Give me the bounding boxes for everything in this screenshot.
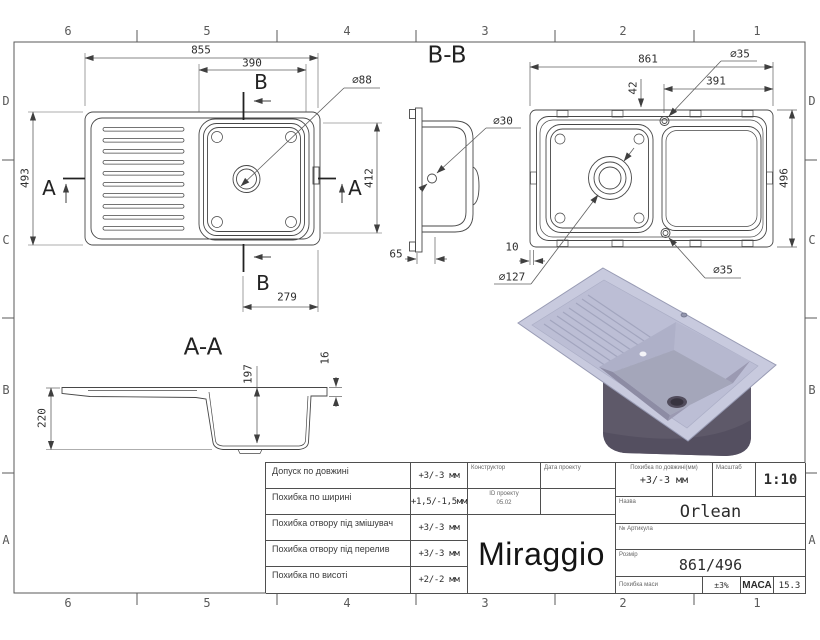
section-marker-a-left: A <box>42 178 56 198</box>
logo-cell: Miraggio <box>468 515 616 594</box>
tolerance-value-text: +1,5/-1,5мм <box>411 489 467 514</box>
dim-42: 42 <box>628 81 639 94</box>
dim-390: 390 <box>242 58 262 69</box>
section-bb-view <box>410 108 480 252</box>
length-tolerance-label: Похибка по довжині(мм) <box>616 463 712 472</box>
zone-row-right-a: A <box>808 534 815 546</box>
zone-col-bottom-1: 1 <box>753 597 760 609</box>
zone-col-top-6: 6 <box>64 25 71 37</box>
mass-tolerance-label-cell: Похибка маси <box>616 577 703 594</box>
bottom-view <box>530 110 773 247</box>
tolerance-row-value: +2/-2 мм <box>411 567 468 594</box>
length-tolerance-cell: Похибка по довжині(мм) +3/-3 мм <box>616 463 713 497</box>
callout-diam-30: ⌀30 <box>493 116 513 127</box>
project-date-cell: Дата проекту <box>541 463 616 489</box>
bottom-view-hole-top <box>660 117 669 126</box>
article-cell: № Артикула <box>616 524 806 550</box>
render-3d <box>518 268 776 456</box>
tolerance-row-label: Похибка отвору під змішувач <box>266 515 411 541</box>
zone-row-left-a: A <box>2 534 9 546</box>
tolerance-row-label: Похибка по ширині <box>266 489 411 515</box>
bottom-view-dimensions <box>494 61 797 284</box>
zone-row-right-d: D <box>808 95 815 107</box>
render-overflow-hole <box>640 352 647 357</box>
callout-diam-35-bottom: ⌀35 <box>713 265 733 276</box>
zone-col-top-5: 5 <box>203 25 210 37</box>
tolerance-row-value: +3/-3 мм <box>411 515 468 541</box>
section-marker-b-top: B <box>254 72 268 92</box>
mass-value: 15.3 <box>774 581 805 591</box>
section-marker-b-bottom: B <box>256 273 270 293</box>
section-bb-title: B-B <box>427 45 466 68</box>
zone-col-bottom-6: 6 <box>64 597 71 609</box>
section-aa-view <box>62 388 327 454</box>
tolerance-value-text: +2/-2 мм <box>411 567 467 593</box>
render-tap-hole <box>681 313 687 317</box>
mass-tolerance-label: Похибка маси <box>616 577 702 589</box>
callout-diam-88: ⌀88 <box>352 75 372 86</box>
mass-tolerance-value-cell: ±3% <box>703 577 741 594</box>
mass-label-cell: МАСА <box>741 577 774 594</box>
constructor-cell: Конструктор <box>468 463 541 489</box>
name-cell: Назва Orlean <box>616 497 806 524</box>
dim-65: 65 <box>389 249 402 260</box>
name-value: Orlean <box>616 502 805 522</box>
scale-value: 1:10 <box>756 472 805 488</box>
tolerance-row-label: Похибка отвору під перелив <box>266 541 411 567</box>
top-view-ribs <box>103 128 184 231</box>
section-aa-title: A-A <box>184 337 223 360</box>
tolerance-value-text: +3/-3 мм <box>411 541 467 566</box>
project-id-label: ID проекту <box>468 489 540 498</box>
length-tolerance-value: +3/-3 мм <box>616 475 712 486</box>
tolerance-row-value: +3/-3 мм <box>411 541 468 567</box>
brand-logo: Miraggio <box>468 515 615 593</box>
zone-row-right-c: C <box>808 234 815 246</box>
top-view-drain <box>233 166 260 193</box>
zone-col-bottom-4: 4 <box>343 597 350 609</box>
tolerance-row-value: +3/-3 мм <box>411 463 468 489</box>
dim-220: 220 <box>37 408 48 428</box>
zone-row-left-c: C <box>2 234 9 246</box>
dim-16: 16 <box>320 351 331 364</box>
zone-col-top-2: 2 <box>619 25 626 37</box>
zone-row-left-b: B <box>2 384 9 396</box>
top-view-dimensions <box>28 53 382 312</box>
dim-496: 496 <box>779 168 790 188</box>
zone-col-bottom-2: 2 <box>619 597 626 609</box>
scale-label-cell: Масштаб <box>713 463 756 497</box>
mass-label: МАСА <box>741 580 773 591</box>
drawing-sheet: 6 5 4 3 2 1 6 5 4 3 2 1 D C B A D C B A … <box>0 0 820 640</box>
scale-value-cell: 1:10 <box>756 463 806 497</box>
callout-diam-127: ⌀127 <box>499 272 526 283</box>
zone-row-left-d: D <box>2 95 9 107</box>
title-block: Допуск по довжині +3/-3 мм Похибка по ши… <box>265 462 805 593</box>
top-view <box>85 112 320 245</box>
section-bb-hole <box>428 174 437 183</box>
zone-col-top-4: 4 <box>343 25 350 37</box>
bottom-view-drain <box>589 157 632 200</box>
zone-row-right-b: B <box>808 384 815 396</box>
size-value: 861/496 <box>616 556 805 574</box>
tolerance-row-label: Похибка по висоті <box>266 567 411 594</box>
tolerance-row-label: Допуск по довжині <box>266 463 411 489</box>
zone-col-bottom-5: 5 <box>203 597 210 609</box>
dim-493: 493 <box>20 168 31 188</box>
dim-10: 10 <box>505 242 518 253</box>
zone-col-top-3: 3 <box>481 25 488 37</box>
dim-861: 861 <box>638 54 658 65</box>
project-id-value: 05.02 <box>468 498 540 507</box>
dim-197: 197 <box>243 364 254 384</box>
tolerance-row-value: +1,5/-1,5мм <box>411 489 468 515</box>
dim-855: 855 <box>191 45 211 56</box>
tolerance-value-text: +3/-3 мм <box>411 515 467 540</box>
dim-391: 391 <box>706 76 726 87</box>
dim-279: 279 <box>277 292 297 303</box>
mass-value-cell: 15.3 <box>774 577 806 594</box>
empty-cell <box>541 489 616 515</box>
zone-col-top-1: 1 <box>753 25 760 37</box>
tolerance-value-text: +3/-3 мм <box>411 463 467 488</box>
zone-col-bottom-3: 3 <box>481 597 488 609</box>
section-marker-a-right: A <box>348 178 362 198</box>
callout-diam-35-top: ⌀35 <box>730 49 750 60</box>
size-cell: Розмір 861/496 <box>616 550 806 577</box>
project-id-cell: ID проекту 05.02 <box>468 489 541 515</box>
bottom-view-bowl <box>546 125 653 233</box>
mass-tolerance-value: ±3% <box>703 581 740 590</box>
dim-412: 412 <box>364 168 375 188</box>
bottom-view-clips <box>531 111 773 247</box>
bottom-view-hole-bottom <box>661 229 670 238</box>
